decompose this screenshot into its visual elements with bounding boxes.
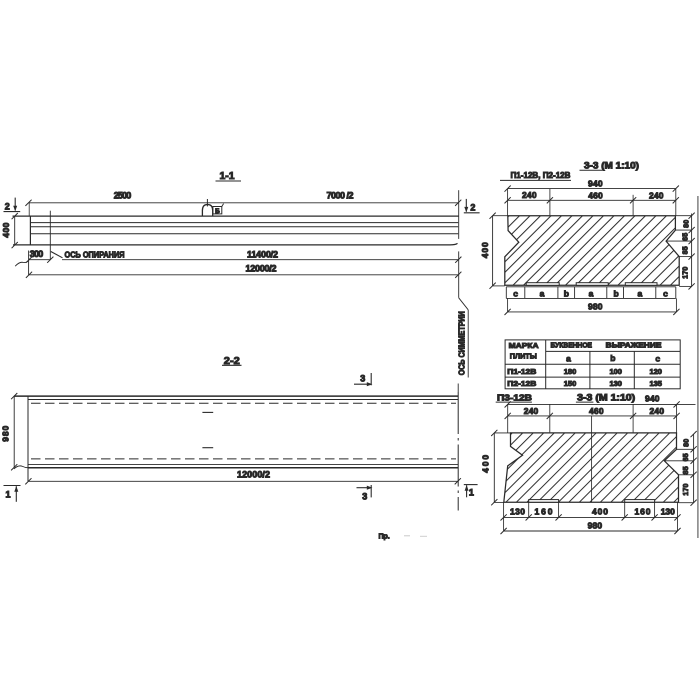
svg-text:12000/2: 12000/2 [246, 264, 277, 274]
svg-text:2500: 2500 [114, 191, 132, 201]
svg-text:c: c [513, 289, 518, 299]
svg-text:940: 940 [588, 179, 603, 189]
svg-text:460: 460 [588, 191, 603, 201]
svg-text:150: 150 [564, 379, 577, 388]
svg-text:65: 65 [682, 233, 689, 241]
svg-text:240: 240 [524, 406, 539, 416]
svg-text:1: 1 [469, 487, 474, 497]
svg-text:130: 130 [510, 507, 525, 517]
svg-text:980: 980 [1, 426, 11, 442]
svg-text:МАРКА: МАРКА [509, 341, 540, 350]
svg-text:940: 940 [645, 394, 660, 404]
svg-text:240: 240 [650, 406, 665, 416]
svg-text:240: 240 [522, 190, 537, 200]
svg-text:400: 400 [592, 507, 608, 517]
svg-text:160: 160 [635, 507, 651, 517]
svg-text:П1-12В: П1-12В [507, 367, 537, 376]
svg-text:130: 130 [609, 379, 622, 388]
svg-text:2: 2 [5, 201, 10, 211]
svg-text:c: c [655, 354, 660, 364]
svg-text:3-3 (М 1:10): 3-3 (М 1:10) [577, 393, 635, 403]
svg-text:85: 85 [682, 246, 689, 254]
svg-text:c: c [663, 289, 668, 299]
svg-text:85: 85 [683, 466, 690, 474]
svg-text:2: 2 [470, 202, 475, 212]
svg-text:400: 400 [480, 242, 490, 258]
svg-text:a: a [589, 289, 594, 299]
svg-text:ОСЬ СИММЕТРИИ: ОСЬ СИММЕТРИИ [458, 311, 467, 375]
svg-text:65: 65 [683, 453, 690, 461]
svg-text:460: 460 [589, 406, 604, 416]
svg-text:170: 170 [682, 267, 689, 279]
svg-text:100: 100 [609, 367, 622, 376]
svg-text:7000 /2: 7000 /2 [327, 191, 354, 201]
svg-text:Пр.: Пр. [379, 534, 390, 541]
svg-text:Б: Б [215, 208, 220, 215]
svg-text:ПЛИТЫ: ПЛИТЫ [510, 351, 537, 360]
svg-text:ОСЬ ОПИРАНИЯ: ОСЬ ОПИРАНИЯ [65, 251, 125, 260]
svg-text:БУКВЕННОЕ: БУКВЕННОЕ [551, 341, 593, 350]
svg-text:b: b [613, 289, 618, 299]
svg-text:240: 240 [649, 191, 664, 201]
svg-text:980: 980 [588, 521, 603, 531]
svg-text:a: a [566, 353, 571, 363]
svg-text:170: 170 [683, 484, 690, 496]
svg-text:130: 130 [661, 507, 675, 517]
svg-text:a: a [638, 289, 643, 299]
svg-text:П1-12В, П2-12В: П1-12В, П2-12В [511, 170, 571, 180]
svg-text:11400/2: 11400/2 [247, 249, 278, 259]
svg-text:400: 400 [481, 455, 491, 473]
svg-text:120: 120 [649, 367, 662, 376]
svg-text:3: 3 [360, 374, 365, 384]
svg-text:180: 180 [564, 367, 577, 376]
svg-text:80: 80 [683, 220, 690, 228]
svg-text:П2-12В: П2-12В [507, 379, 537, 388]
svg-text:3: 3 [362, 492, 367, 502]
svg-text:135: 135 [649, 379, 662, 388]
svg-text:80: 80 [684, 439, 691, 447]
svg-text:300: 300 [30, 249, 44, 259]
svg-text:160: 160 [535, 507, 553, 517]
svg-text:1: 1 [5, 490, 10, 500]
svg-text:12000/2: 12000/2 [237, 470, 270, 480]
svg-text:b: b [610, 353, 615, 363]
svg-text:400: 400 [1, 222, 11, 237]
svg-text:a: a [540, 289, 545, 299]
svg-text:3-3 (М 1:10): 3-3 (М 1:10) [584, 161, 639, 171]
svg-text:980: 980 [588, 302, 603, 312]
svg-text:П3-12В: П3-12В [497, 392, 532, 402]
svg-text:b: b [564, 289, 569, 299]
svg-text:1-1: 1-1 [220, 171, 235, 182]
svg-text:ВЫРАЖЕНИЕ: ВЫРАЖЕНИЕ [606, 341, 662, 350]
